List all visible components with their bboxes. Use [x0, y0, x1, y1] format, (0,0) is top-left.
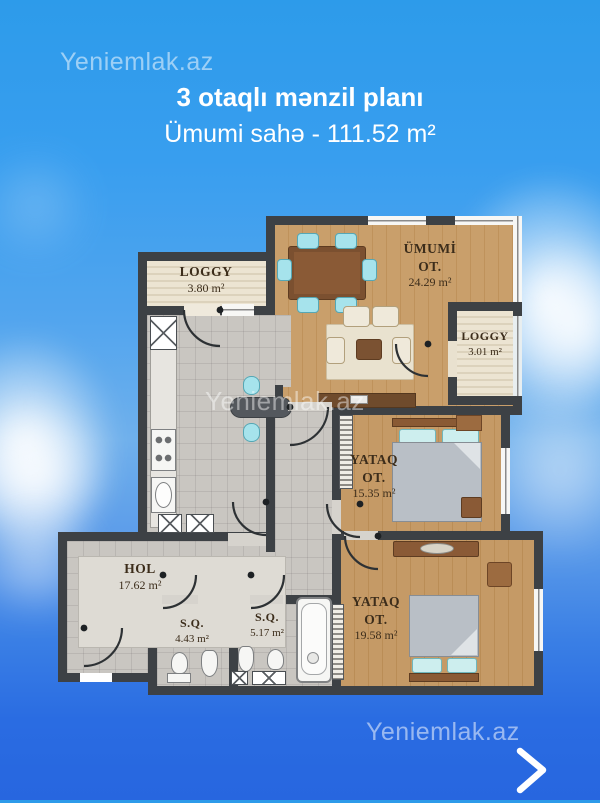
- door-arc: [184, 310, 220, 346]
- door-arc: [163, 575, 196, 608]
- next-button[interactable]: [510, 744, 554, 798]
- watermark-bottom: Yeniemlak.az: [366, 718, 520, 747]
- door-hinge: [248, 572, 255, 579]
- door-arc: [84, 628, 122, 666]
- door-arc: [396, 344, 428, 376]
- door-arc: [327, 504, 360, 537]
- door-hinge: [375, 533, 382, 540]
- door-hinge: [160, 572, 167, 579]
- watermark-top: Yeniemlak.az: [60, 48, 214, 77]
- listing-floorplan-page: { "watermarks": { "top": "Yeniemlak.az",…: [0, 0, 600, 800]
- door-arc: [251, 575, 284, 608]
- door-hinge: [425, 341, 432, 348]
- chevron-right-icon: [510, 744, 554, 798]
- door-hinge: [263, 499, 270, 506]
- door-hinge: [81, 625, 88, 632]
- door-arc: [345, 536, 378, 569]
- door-arc: [233, 502, 266, 535]
- door-hinge: [217, 307, 224, 314]
- door-hinge: [357, 501, 364, 508]
- watermark-middle: Yeniemlak.az: [205, 386, 365, 417]
